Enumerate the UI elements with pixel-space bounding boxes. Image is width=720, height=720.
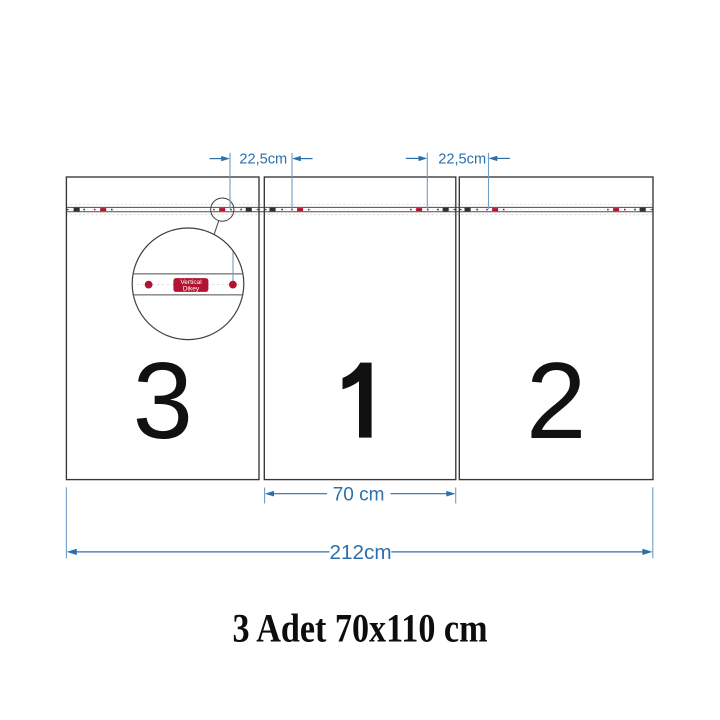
svg-text:2: 2 (526, 340, 586, 461)
svg-text:70 cm: 70 cm (333, 485, 385, 506)
svg-text:Dikey: Dikey (183, 286, 200, 293)
svg-text:22,5cm: 22,5cm (239, 152, 287, 168)
svg-text:212cm: 212cm (329, 541, 391, 564)
svg-text:3 Adet 70x110 cm: 3 Adet 70x110 cm (233, 606, 488, 651)
svg-text:3: 3 (133, 340, 193, 461)
svg-text:22,5cm: 22,5cm (438, 151, 486, 167)
